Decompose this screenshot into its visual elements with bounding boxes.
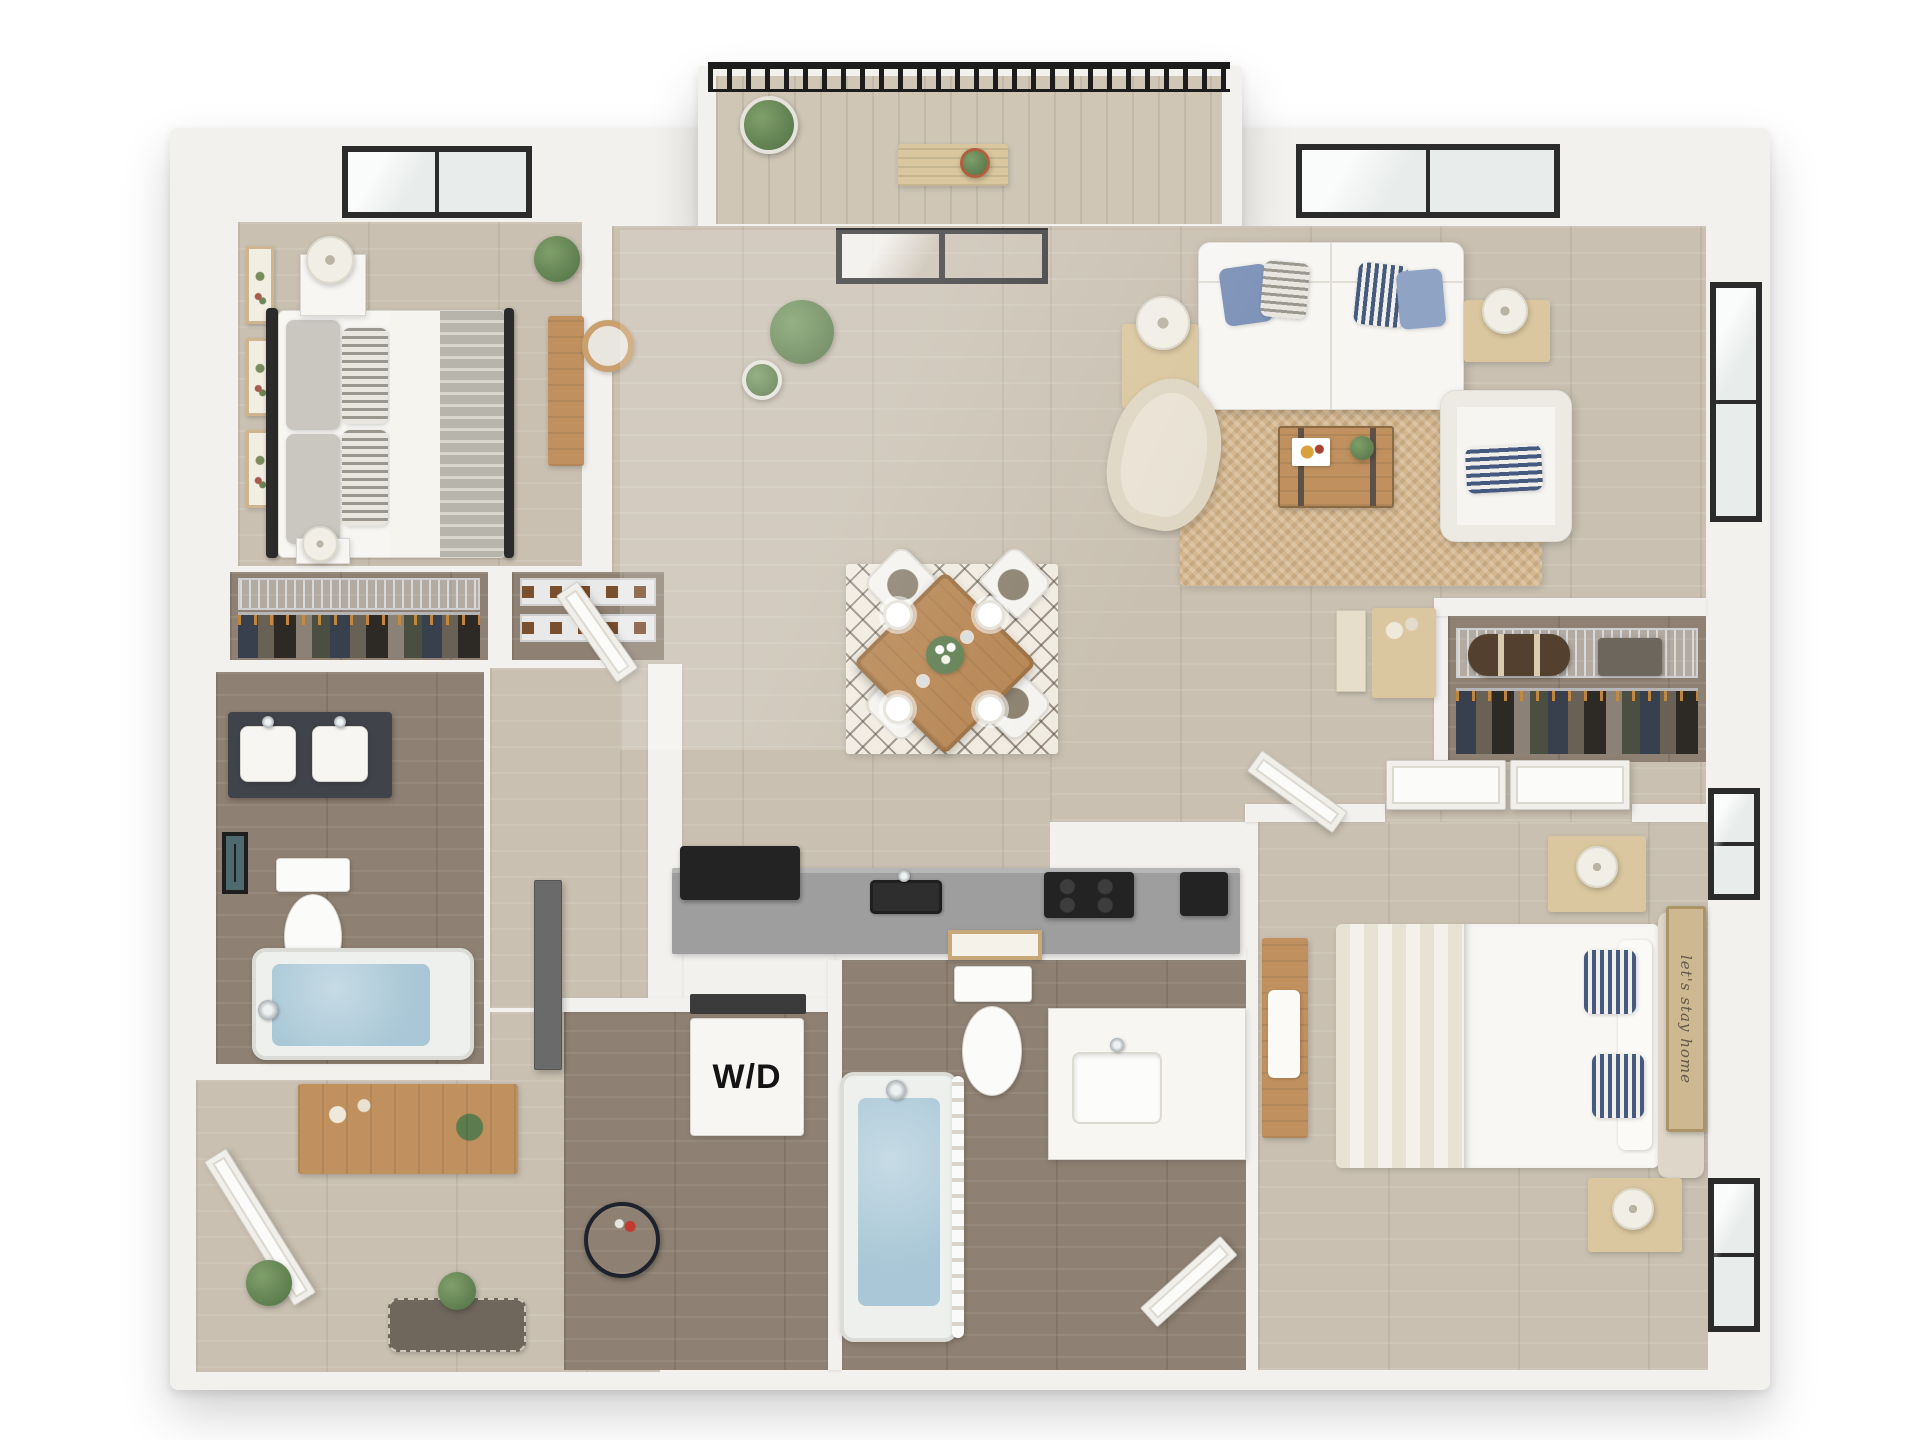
- bed-1-duvet: [440, 311, 504, 557]
- bathroom-1-sink-right: [312, 726, 368, 782]
- bed-2-folded-coverlet: [1336, 924, 1464, 1168]
- bedroom-2-lamp-bottom: [1612, 1188, 1654, 1230]
- dining-centerpiece-flowers: [926, 636, 964, 674]
- bathtub-1-water: [272, 964, 430, 1046]
- accent-chair-pillow: [1465, 444, 1543, 494]
- bedroom-1-plant: [534, 236, 580, 282]
- bedroom-2-door-leaf-left: [1386, 760, 1506, 810]
- bedroom-2-bench-towel: [1268, 990, 1300, 1078]
- shower-curtain: [952, 1076, 964, 1338]
- trunk-magazine: [1292, 438, 1330, 466]
- toilet-2-wall-art: [948, 930, 1042, 960]
- balcony-small-plant: [960, 148, 990, 178]
- closet-2-storage-box: [1598, 638, 1662, 676]
- dining-plate-2: [975, 600, 1005, 630]
- water-heater: [584, 1202, 660, 1278]
- wall-oven: [1180, 872, 1228, 916]
- bathroom-2-faucet: [1110, 1038, 1124, 1052]
- balcony-plant-pot: [740, 96, 798, 154]
- side-table-left-lamp: [1136, 296, 1190, 350]
- living-area-plant: [770, 300, 834, 364]
- refrigerator: [680, 846, 800, 900]
- laundry-door: [534, 880, 562, 1070]
- balcony-sliding-door: [836, 228, 1048, 284]
- dining-glass-2: [918, 676, 928, 686]
- bed-2-pillow-striped-2: [1592, 1054, 1644, 1118]
- toilet-1-tank: [276, 858, 350, 892]
- entry-plant-1: [246, 1260, 292, 1306]
- bathroom-1-faucet-right: [334, 716, 346, 728]
- bathroom-1-wall-art: [222, 832, 248, 894]
- bed-1-footboard: [504, 308, 514, 558]
- bedroom-2-door-leaf-right: [1510, 760, 1630, 810]
- bed-1-sheet: [390, 311, 440, 557]
- bedroom-1-dresser: [548, 316, 584, 466]
- bathroom-1-faucet-left: [262, 716, 274, 728]
- cooktop: [1044, 872, 1134, 918]
- toilet-2-tank: [954, 966, 1032, 1002]
- lets-stay-home-sign: let's stay home: [1666, 906, 1706, 1132]
- dining-plate-4: [975, 694, 1005, 724]
- trunk-plant: [1350, 436, 1374, 460]
- entry-plant-2: [438, 1272, 476, 1310]
- bedroom-2-window-lower: [1708, 1178, 1760, 1332]
- apartment-floor-plan: W/D let's stay home: [0, 0, 1920, 1440]
- bathtub-2-faucet: [886, 1080, 906, 1100]
- bedroom-2-lamp-top: [1576, 846, 1618, 888]
- dining-plate-1: [883, 600, 913, 630]
- bed-1-pillow-front-2: [342, 430, 388, 526]
- corridor-floor: [490, 668, 660, 1008]
- kitchen-sink: [870, 880, 942, 914]
- sofa-pillow-blue-2: [1396, 268, 1447, 330]
- bedroom-1-window: [342, 146, 532, 218]
- entry-console-table: [298, 1084, 518, 1174]
- washer-dryer-label: W/D: [691, 1019, 803, 1135]
- dining-plate-3: [883, 694, 913, 724]
- bed-1-headboard: [266, 308, 278, 558]
- living-room-window-right: [1710, 282, 1762, 522]
- bathtub-1-faucet: [258, 1000, 278, 1020]
- bedroom-1-round-mirror: [582, 320, 634, 372]
- bedroom-2-window-upper: [1708, 788, 1760, 900]
- kitchen-faucet: [898, 870, 910, 882]
- side-table-right-lamp: [1482, 288, 1528, 334]
- toilet-2-bowl: [962, 1006, 1022, 1096]
- hall-cabinet: [1336, 610, 1366, 692]
- bathroom-1-sink-left: [240, 726, 296, 782]
- hall-mat: [1372, 608, 1436, 698]
- bed-1-pillow-front-1: [342, 328, 388, 424]
- wall-sign-text: let's stay home: [1677, 955, 1695, 1084]
- balcony-bench: [898, 144, 1008, 186]
- bedroom-1-lamp-bottom: [302, 526, 338, 562]
- living-room-window-top: [1296, 144, 1560, 218]
- sofa-pillow-striped-white: [1260, 260, 1311, 320]
- closet-1-wire-shelf: [238, 578, 480, 610]
- bedroom-2-wall-right: [1632, 804, 1706, 822]
- bathroom-2-sink: [1072, 1052, 1162, 1124]
- closet-2-wall-left: [1434, 612, 1448, 766]
- dining-glass-1: [962, 632, 972, 642]
- bed-1-pillow-back-1: [286, 320, 340, 430]
- closet-2-duffel-bag: [1468, 634, 1570, 676]
- balcony-railing: [708, 62, 1230, 92]
- closet-1-hanging-clothes: [238, 612, 480, 658]
- laundry-shelf: [690, 994, 806, 1014]
- living-area-plant-2: [742, 360, 782, 400]
- bathtub-2-water: [858, 1098, 940, 1306]
- washer-dryer-unit: W/D: [690, 1018, 804, 1136]
- kitchen-side-wall: [648, 664, 682, 1010]
- bedroom-1-lamp-top: [306, 236, 354, 284]
- closet-2-hanging-clothes: [1456, 688, 1698, 754]
- closet-2-wall-top: [1434, 598, 1706, 616]
- bed-2-pillow-striped-1: [1584, 950, 1636, 1014]
